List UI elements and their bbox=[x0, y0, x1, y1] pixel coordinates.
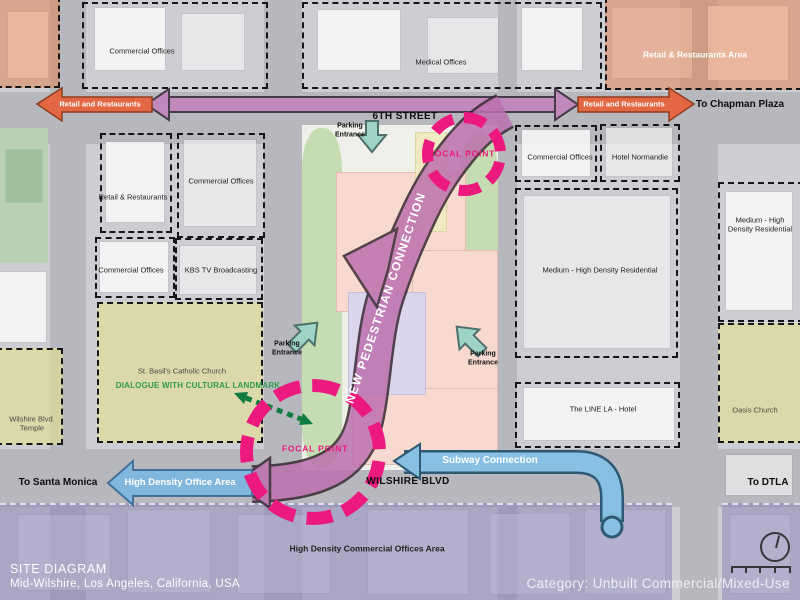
label-retail-arrow-west: Retail and Restaurants bbox=[59, 99, 140, 108]
scale-bar bbox=[731, 566, 791, 572]
label-line: Temple bbox=[9, 424, 54, 433]
label-focal-point-top: FOCAL POINT bbox=[429, 149, 495, 160]
label-commercial-offices-low: Commercial Offices bbox=[98, 265, 163, 274]
label-line: Parking bbox=[272, 340, 302, 349]
label-commercial-offices-mid: Commercial Offices bbox=[188, 176, 253, 185]
label-commercial-offices-right: Commercial Offices bbox=[527, 152, 592, 161]
label-oasis-church: Oasis Church bbox=[732, 405, 777, 414]
subway-station-node bbox=[602, 517, 622, 537]
page-title: SITE DIAGRAM bbox=[10, 562, 240, 576]
category-label: Category: Unbuilt Commercial/Mixed-Use bbox=[526, 576, 790, 591]
label-line: Entrance bbox=[468, 359, 498, 368]
label-line: Parking bbox=[468, 350, 498, 359]
label-wilshire-blvd: WILSHIRE BLVD bbox=[366, 476, 449, 489]
label-residential-east: Medium - High Density Residential bbox=[728, 216, 792, 235]
arrow-layer bbox=[0, 0, 800, 600]
label-retail-restaurants-area: Retail & Restaurants Area bbox=[643, 50, 747, 61]
label-residential-main: Medium - High Density Residential bbox=[542, 265, 657, 274]
label-commercial-offices-north: Commercial Offices bbox=[109, 46, 174, 55]
label-line: Medium - High bbox=[728, 216, 792, 225]
north-arrow-hand bbox=[775, 535, 780, 548]
label-retail-arrow-east: Retail and Restaurants bbox=[583, 99, 664, 108]
label-line: Wilshire Blvd. bbox=[9, 415, 54, 424]
label-office-area-arrow: High Density Office Area bbox=[124, 477, 235, 489]
label-focal-point-bottom: FOCAL POINT bbox=[282, 444, 348, 455]
label-line: Entrance bbox=[335, 131, 365, 140]
label-parking-entrance-north: Parking Entrance bbox=[335, 122, 365, 140]
label-parking-entrance-east: Parking Entrance bbox=[468, 350, 498, 368]
sixth-street-flow-arrow bbox=[146, 89, 578, 120]
label-to-dtla: To DTLA bbox=[748, 477, 789, 490]
label-wilshire-temple: Wilshire Blvd. Temple bbox=[9, 415, 54, 434]
label-to-santa-monica: To Santa Monica bbox=[19, 477, 98, 490]
label-to-chapman-plaza: To Chapman Plaza bbox=[696, 99, 784, 112]
label-line: Entrance bbox=[272, 349, 302, 358]
site-diagram: Commercial Offices Medical Offices Retai… bbox=[0, 0, 800, 600]
label-high-density-commercial: High Density Commercial Offices Area bbox=[289, 544, 444, 555]
page-subtitle: Mid-Wilshire, Los Angeles, California, U… bbox=[10, 578, 240, 590]
label-line-la-hotel: The LINE LA - Hotel bbox=[570, 404, 637, 413]
label-hotel-normandie: Hotel Normandie bbox=[612, 152, 668, 161]
north-arrow-icon bbox=[760, 532, 790, 562]
label-medical-offices: Medical Offices bbox=[415, 57, 466, 66]
label-kbs-tv: KBS TV Broadcasting bbox=[185, 265, 257, 274]
label-parking-entrance-west: Parking Entrance bbox=[272, 340, 302, 358]
label-line: Density Residential bbox=[728, 225, 792, 234]
label-dialogue-cultural-landmark: DIALOGUE WITH CULTURAL LANDMARK bbox=[116, 381, 281, 391]
label-st-basil: St. Basil's Catholic Church bbox=[138, 366, 226, 375]
label-retail-restaurants-mid: Retail & Restaurants bbox=[99, 192, 168, 201]
label-line: Parking bbox=[335, 122, 365, 131]
label-6th-street: 6TH STREET bbox=[372, 111, 437, 124]
title-block: SITE DIAGRAM Mid-Wilshire, Los Angeles, … bbox=[10, 562, 240, 590]
label-subway-connection: Subway Connection bbox=[442, 455, 538, 468]
